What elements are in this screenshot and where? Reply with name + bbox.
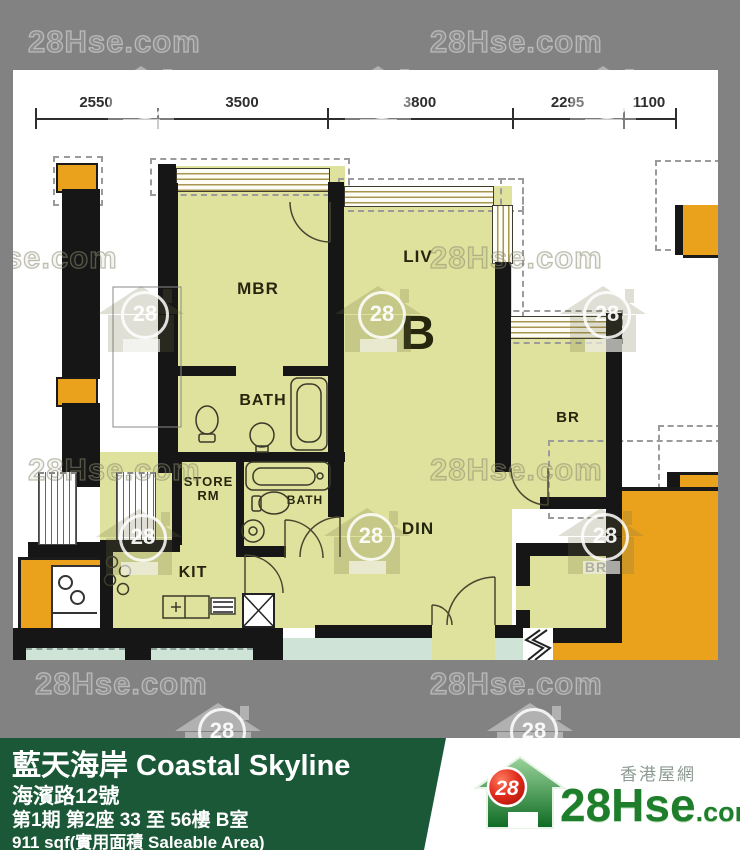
watermark-text: 28Hse.com xyxy=(28,24,201,60)
toilet-lower xyxy=(259,492,289,514)
door-arc-kitchen xyxy=(245,555,283,593)
watermark-badge: 28 xyxy=(581,513,629,561)
watermark-text: 28Hse.com xyxy=(28,452,201,488)
bathtub-drain xyxy=(317,473,323,479)
watermark-notch xyxy=(583,561,620,574)
watermark-text: 28Hse.com xyxy=(430,24,603,60)
logo-badge-number: 28 xyxy=(494,777,519,800)
watermark-notch xyxy=(585,119,622,132)
door-arc-entry-main xyxy=(447,577,495,625)
info-footer: 藍天海岸 Coastal Skyline 海濱路12號 第1期 第2座 33 至… xyxy=(0,738,740,850)
toilet-upper-tank xyxy=(199,434,215,442)
bathtub-upper-inner xyxy=(297,384,321,442)
watermark-house-icon: 28 xyxy=(558,508,644,578)
watermark-notch xyxy=(360,339,397,352)
door-arc-mbr xyxy=(290,202,330,242)
logo-name-tld: .com xyxy=(696,797,740,827)
estate-area: 911 sqf(實用面積 Saleable Area) xyxy=(12,828,265,850)
watermark-notch xyxy=(123,119,160,132)
logo-house-door xyxy=(508,812,538,828)
watermark-house-icon: 28 xyxy=(98,66,184,136)
watermark-badge: 28 xyxy=(347,513,395,561)
watermark-notch xyxy=(121,562,158,575)
logo-site-name: 28Hse.com xyxy=(560,778,740,832)
watermark-text: 28Hse.com xyxy=(35,666,208,702)
basin-lower xyxy=(242,520,264,542)
watermark-house-icon: 28 xyxy=(335,66,421,136)
kitchen-sink xyxy=(163,596,209,618)
floorplan-page: 2550 3500 3800 2295 1100 xyxy=(0,0,740,850)
logo-house-icon: 28 xyxy=(474,754,566,832)
kitchen-hatch-unit xyxy=(211,598,235,614)
bathtub-lower-inner xyxy=(253,468,315,485)
watermark-house-icon: 28 xyxy=(324,508,410,578)
watermark-house-icon: 28 xyxy=(560,286,646,356)
basin-lower-drain xyxy=(249,527,257,535)
door-arc-entry-leaf xyxy=(432,605,452,625)
watermark-house-icon: 28 xyxy=(560,66,646,136)
toilet-upper xyxy=(196,406,218,434)
estate-title: 藍天海岸 Coastal Skyline xyxy=(12,742,350,784)
watermark-text: 28Hse.com xyxy=(430,240,603,276)
watermark-notch xyxy=(585,339,622,352)
watermark-badge: 28 xyxy=(119,514,167,562)
watermark-house-icon: 28 xyxy=(96,509,182,579)
watermark-badge: 28 xyxy=(121,291,169,339)
watermark-notch xyxy=(123,339,160,352)
watermark-badge: 28 xyxy=(358,291,406,339)
watermark-text: 28Hse.com xyxy=(430,452,603,488)
break-line xyxy=(526,630,550,660)
floorplan-canvas: 2550 3500 3800 2295 1100 xyxy=(13,70,718,660)
watermark-badge: 28 xyxy=(121,71,169,119)
watermark-house-icon: 28 xyxy=(98,286,184,356)
logo-name-main: 28Hse xyxy=(560,779,696,831)
watermark-badge: 28 xyxy=(583,71,631,119)
basin-upper xyxy=(250,423,274,447)
site-logo-link[interactable]: 28 香港屋網 28Hse.com xyxy=(470,738,740,850)
watermark-badge: 28 xyxy=(583,291,631,339)
watermark-badge: 28 xyxy=(358,71,406,119)
duct-shaft xyxy=(243,594,274,627)
watermark-notch xyxy=(349,561,386,574)
watermark-notch xyxy=(360,119,397,132)
watermark-house-icon: 28 xyxy=(335,286,421,356)
stove-burner xyxy=(118,584,129,595)
watermark-text: 28Hse.com xyxy=(13,240,118,276)
watermark-text: 28Hse.com xyxy=(430,666,603,702)
